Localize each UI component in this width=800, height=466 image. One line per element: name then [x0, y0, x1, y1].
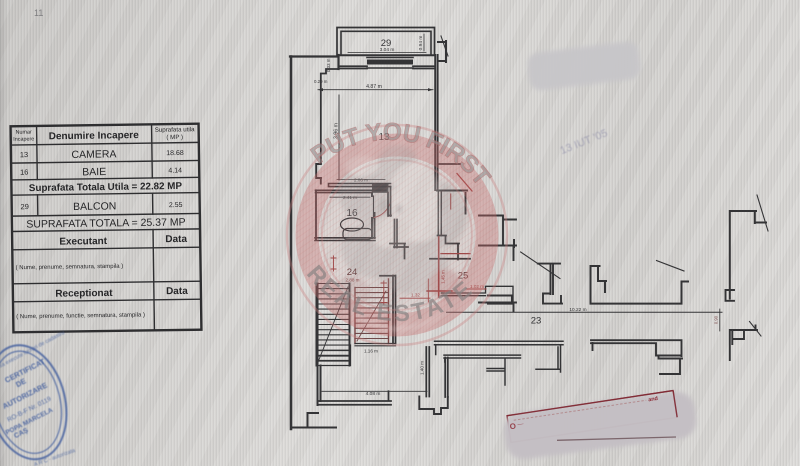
- svg-text:Data: Data: [166, 286, 188, 297]
- svg-text:13: 13: [20, 150, 28, 159]
- svg-text:BALCON: BALCON: [73, 200, 116, 213]
- svg-text:4.14: 4.14: [168, 167, 182, 174]
- svg-text:0.94 m: 0.94 m: [418, 36, 424, 51]
- svg-text:Suprafata Totala Utila = 22.82: Suprafata Totala Utila = 22.82 MP: [29, 181, 183, 194]
- svg-text:10.22 m: 10.22 m: [569, 307, 586, 313]
- svg-text:1.16 m: 1.16 m: [364, 349, 378, 354]
- svg-text:3.04 m: 3.04 m: [380, 47, 395, 53]
- svg-text:1.40 m: 1.40 m: [420, 361, 425, 375]
- svg-text:11: 11: [34, 8, 43, 18]
- svg-text:0.33 m: 0.33 m: [326, 58, 331, 72]
- svg-text:( MP ): ( MP ): [166, 134, 183, 141]
- svg-text:—: —: [517, 421, 524, 428]
- svg-text:BAIE: BAIE: [82, 166, 106, 178]
- svg-text:Suprafata utila: Suprafata utila: [155, 126, 196, 134]
- svg-text:Incapere: Incapere: [13, 136, 34, 142]
- svg-text:SUPRAFATA TOTALA = 25.37 MP: SUPRAFATA TOTALA = 25.37 MP: [26, 216, 185, 230]
- svg-text:16: 16: [20, 168, 28, 177]
- svg-text:23: 23: [531, 316, 542, 327]
- svg-text:29: 29: [20, 202, 28, 211]
- svg-text:18.68: 18.68: [166, 150, 184, 157]
- svg-text:O: O: [509, 422, 517, 432]
- svg-text:0.29 m: 0.29 m: [314, 79, 328, 84]
- svg-text:Denumire Incapere: Denumire Incapere: [49, 130, 140, 142]
- svg-text:2.55: 2.55: [169, 202, 183, 209]
- svg-text:Executant: Executant: [59, 236, 108, 248]
- svg-text:0.90: 0.90: [714, 315, 719, 324]
- svg-text:Data: Data: [165, 234, 187, 245]
- svg-text:CAMERA: CAMERA: [71, 148, 116, 161]
- svg-text:Receptionat: Receptionat: [55, 288, 113, 300]
- svg-text:( Nume, prenume, functie, semn: ( Nume, prenume, functie, semnatura, sta…: [16, 312, 145, 320]
- svg-text:4.08 m: 4.08 m: [366, 391, 381, 397]
- svg-text:13 IUT '05: 13 IUT '05: [558, 127, 609, 157]
- svg-text:Numar: Numar: [16, 130, 32, 136]
- svg-text:( Nume, prenume, semnatura, st: ( Nume, prenume, semnatura, stampila ): [16, 264, 124, 272]
- svg-text:4.87 m: 4.87 m: [366, 84, 382, 90]
